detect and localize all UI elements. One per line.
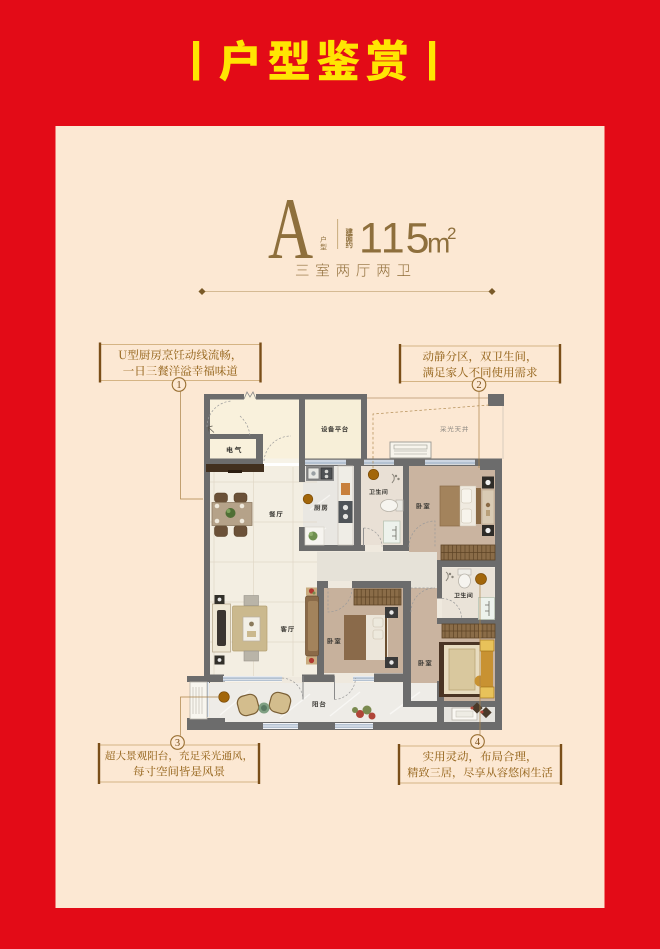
svg-text:2: 2 <box>476 380 481 391</box>
svg-text:A: A <box>268 180 313 278</box>
svg-text:4: 4 <box>475 737 481 748</box>
svg-text:1: 1 <box>176 380 181 391</box>
svg-text:115: 115 <box>359 215 431 263</box>
svg-text:2: 2 <box>447 224 456 243</box>
svg-text:3: 3 <box>175 738 180 749</box>
